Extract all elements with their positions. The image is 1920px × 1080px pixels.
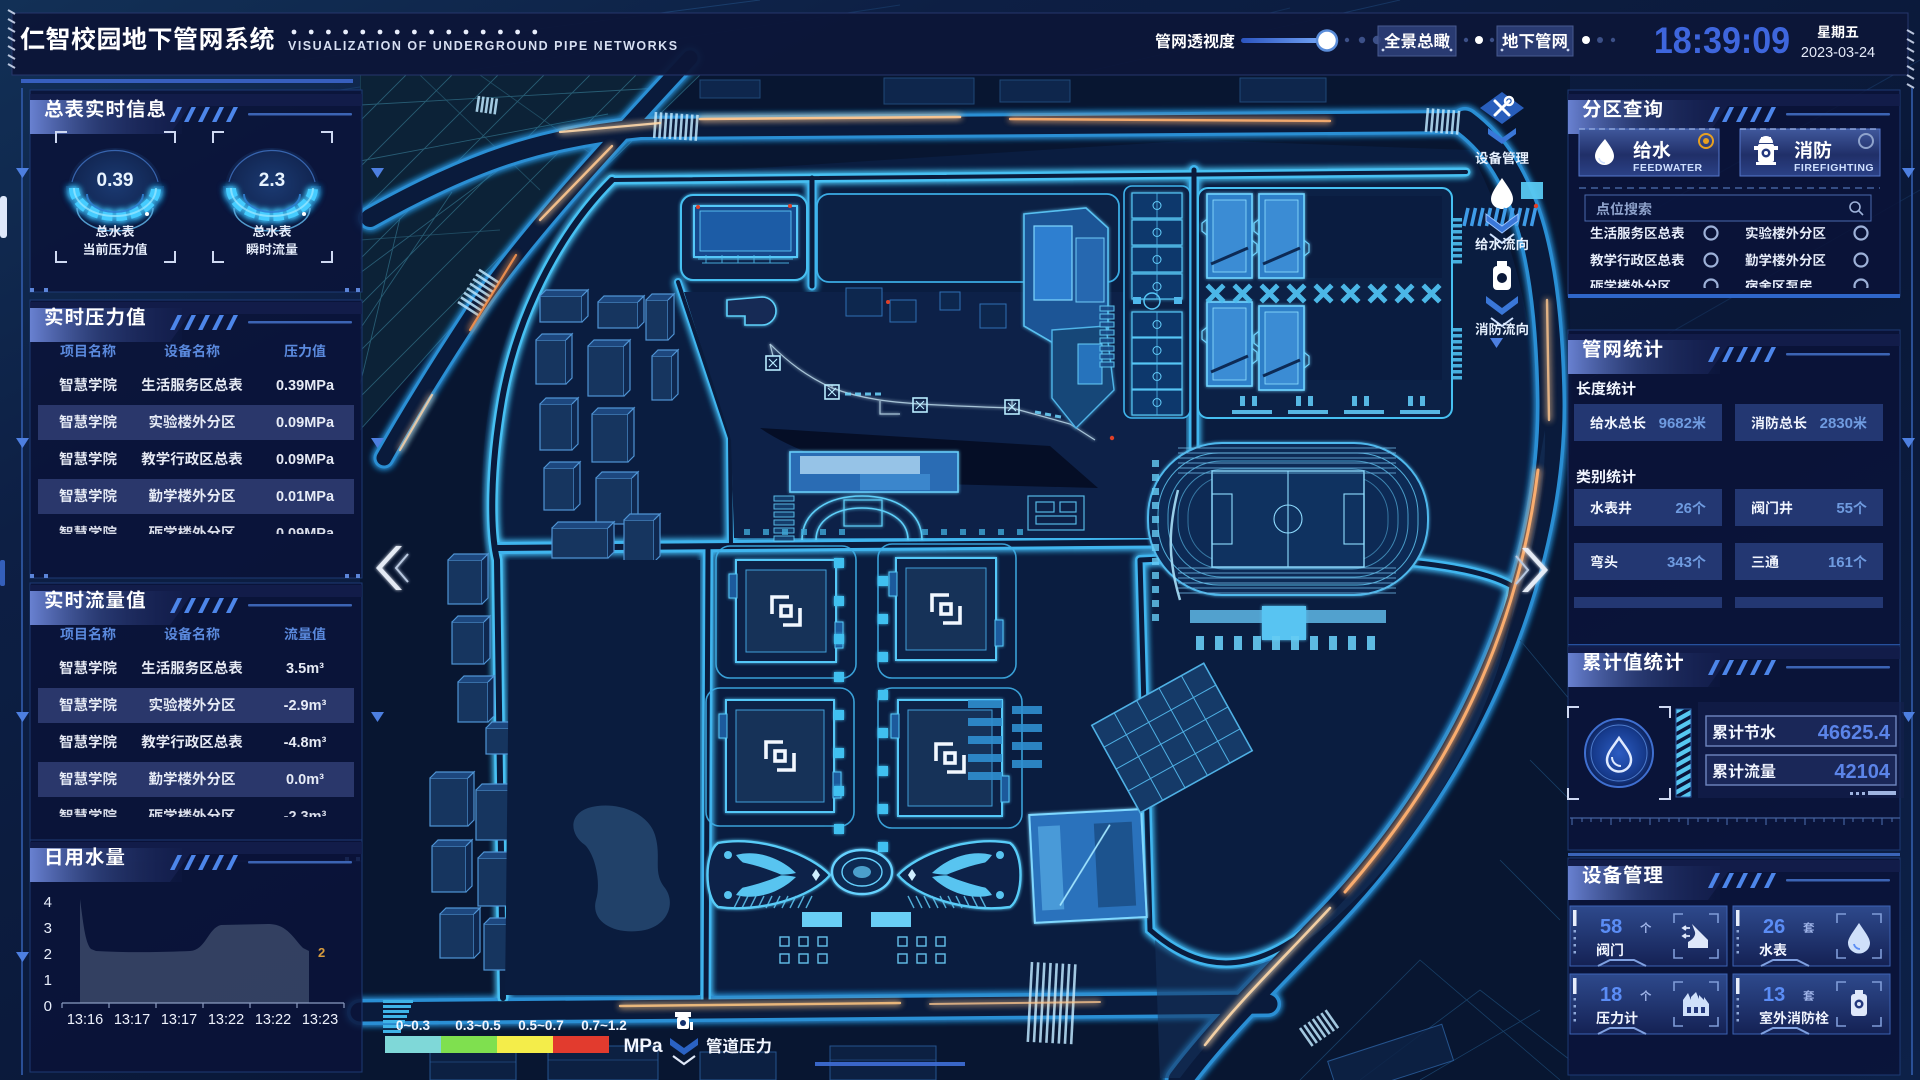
svg-text:18: 18 [1600,984,1622,1006]
svg-text:9682: 9682 [1659,415,1692,432]
svg-text:0.7~1.2: 0.7~1.2 [581,1018,626,1033]
svg-text:1: 1 [44,972,52,989]
svg-text:-2.9m³: -2.9m³ [284,698,327,714]
svg-text:0.39: 0.39 [97,170,134,191]
svg-text:0.09MPa: 0.09MPa [276,452,335,468]
svg-text:MPa: MPa [623,1036,663,1057]
svg-text:0.39MPa: 0.39MPa [276,378,335,394]
svg-text:13:23: 13:23 [302,1012,338,1028]
svg-text:-4.8m³: -4.8m³ [284,735,327,751]
svg-text:0.3~0.5: 0.3~0.5 [455,1018,501,1033]
svg-text:42104: 42104 [1834,761,1890,783]
svg-text:3.5m³: 3.5m³ [286,661,324,677]
svg-text:3: 3 [44,920,52,937]
svg-text:0.5~0.7: 0.5~0.7 [518,1018,563,1033]
svg-text:FEEDWATER: FEEDWATER [1633,162,1703,174]
svg-text:0.01MPa: 0.01MPa [276,489,335,505]
svg-text:13:16: 13:16 [67,1012,103,1028]
svg-text:VISUALIZATION OF UNDERGROUND P: VISUALIZATION OF UNDERGROUND PIPE NETWOR… [288,39,679,53]
svg-text:26: 26 [1763,916,1785,938]
svg-text:55: 55 [1836,500,1853,517]
svg-text:343: 343 [1667,554,1692,571]
svg-text:18:39:09: 18:39:09 [1654,20,1790,62]
svg-text:0.0m³: 0.0m³ [286,772,324,788]
svg-text:13: 13 [1763,984,1785,1006]
svg-text:13:22: 13:22 [208,1012,244,1028]
svg-text:46625.4: 46625.4 [1818,722,1891,744]
svg-text:13:17: 13:17 [114,1012,150,1028]
svg-text:0.09MPa: 0.09MPa [276,415,335,431]
svg-text:4: 4 [44,894,52,911]
svg-text:0: 0 [44,998,52,1015]
svg-text:26: 26 [1675,500,1692,517]
svg-text:2: 2 [318,945,325,960]
svg-text:58: 58 [1600,916,1622,938]
svg-text:13:22: 13:22 [255,1012,291,1028]
svg-text:2: 2 [44,946,52,963]
svg-text:161: 161 [1828,554,1853,571]
svg-text:2023-03-24: 2023-03-24 [1801,45,1875,61]
svg-text:FIREFIGHTING: FIREFIGHTING [1794,162,1874,174]
svg-text:0~0.3: 0~0.3 [396,1018,431,1033]
svg-text:2.3: 2.3 [259,170,285,191]
svg-text:2830: 2830 [1820,415,1853,432]
svg-text:13:17: 13:17 [161,1012,197,1028]
